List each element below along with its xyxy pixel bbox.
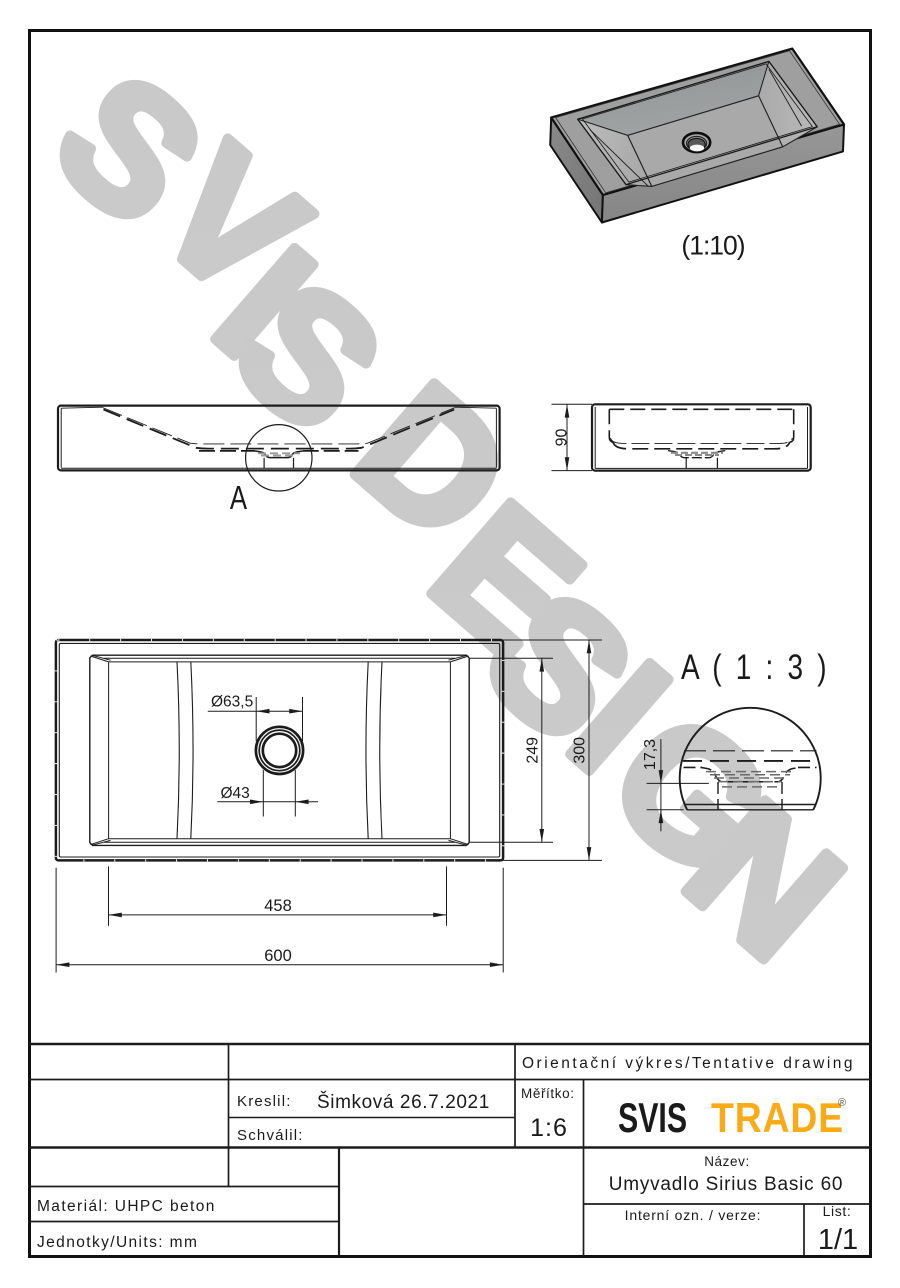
svg-text:A: A — [230, 480, 247, 517]
svg-text:Orientační výkres/Tentative dr: Orientační výkres/Tentative drawing — [522, 1055, 855, 1072]
svg-text:Jednotky/Units: mm: Jednotky/Units: mm — [37, 1234, 198, 1251]
svg-text:1/1: 1/1 — [818, 1224, 858, 1256]
svg-text:TRADE: TRADE — [711, 1095, 844, 1141]
svg-text:Schválil:: Schválil: — [237, 1127, 304, 1144]
svg-text:Kreslil:: Kreslil: — [237, 1093, 292, 1110]
svg-text:Materiál: UHPC beton: Materiál: UHPC beton — [37, 1198, 216, 1215]
svg-text:List:: List: — [823, 1203, 852, 1219]
svg-text:600: 600 — [264, 947, 292, 965]
svg-text:90: 90 — [554, 429, 571, 447]
svg-text:249: 249 — [525, 737, 542, 764]
svg-text:A ( 1 : 3 ): A ( 1 : 3 ) — [681, 647, 830, 687]
svg-text:®: ® — [838, 1097, 846, 1109]
svg-text:Umyvadlo Sirius Basic 60: Umyvadlo Sirius Basic 60 — [609, 1174, 844, 1195]
svg-text:Ø43: Ø43 — [221, 785, 250, 802]
svg-text:458: 458 — [264, 897, 292, 915]
svg-text:1:6: 1:6 — [530, 1114, 568, 1142]
svg-text:Název:: Název: — [704, 1154, 750, 1169]
svg-text:Šimková 26.7.2021: Šimková 26.7.2021 — [317, 1091, 490, 1113]
svg-text:SVIS: SVIS — [618, 1094, 687, 1141]
svg-text:Interní ozn. / verze:: Interní ozn. / verze: — [625, 1207, 762, 1223]
svg-text:Měřítko:: Měřítko: — [521, 1086, 575, 1101]
svg-text:300: 300 — [572, 737, 589, 764]
svg-text:17,3: 17,3 — [642, 739, 659, 770]
svg-text:Ø63,5: Ø63,5 — [211, 694, 253, 711]
svg-text:(1:10): (1:10) — [681, 231, 744, 261]
